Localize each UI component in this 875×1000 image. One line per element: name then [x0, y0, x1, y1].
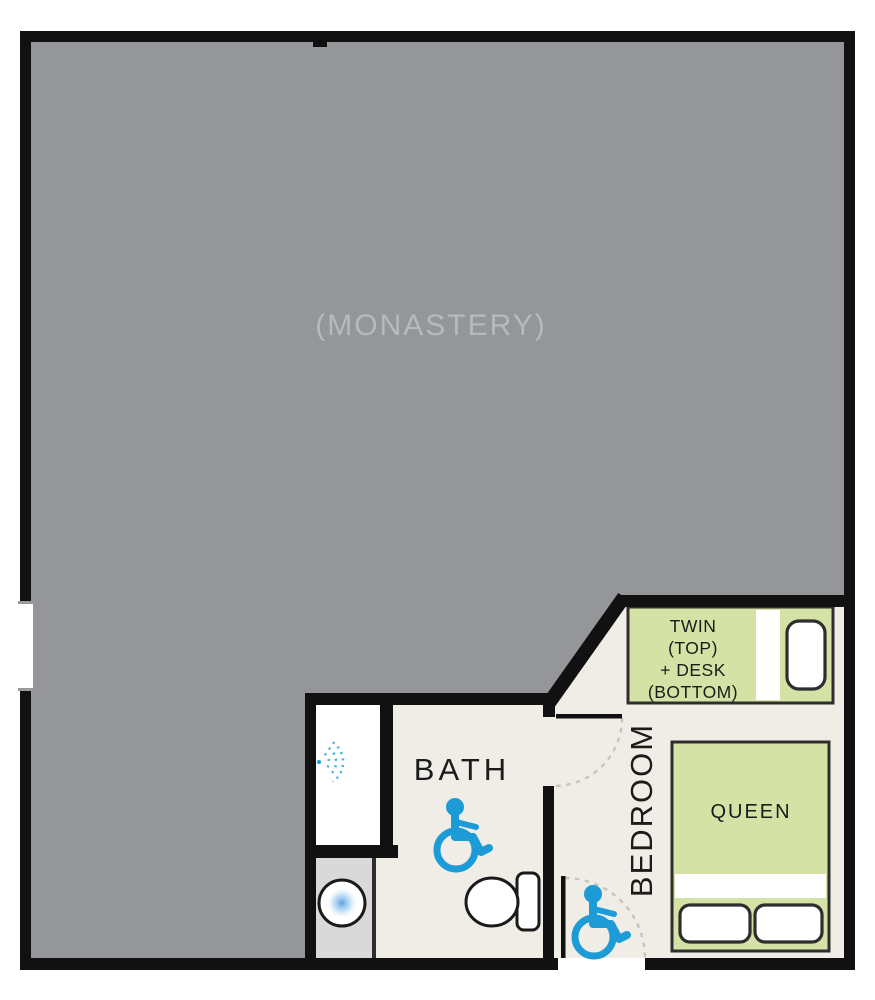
- twin-label-line4: (BOTTOM): [648, 682, 738, 702]
- toilet-tank: [517, 873, 539, 930]
- floor-plan-svg: (MONASTERY) BATH BEDROOM QUEEN TWIN (TOP…: [0, 0, 875, 1000]
- wall-bottom-left: [20, 958, 558, 970]
- wall-top-notch: [313, 42, 327, 47]
- bath-door-panel: [556, 714, 622, 719]
- wall-bottom-right: [645, 958, 855, 970]
- bath-label: BATH: [414, 752, 510, 787]
- entrance-door-panel: [561, 876, 566, 958]
- wall-shower-right: [380, 705, 393, 858]
- queen-sheet-fold: [675, 874, 826, 898]
- wall-shower-bottom: [305, 845, 398, 858]
- window-opening: [18, 604, 33, 688]
- twin-bed-headboard-gap: [756, 610, 780, 700]
- twin-label-line1: TWIN: [670, 616, 717, 636]
- monastery-label: (MONASTERY): [315, 309, 546, 342]
- wall-left: [20, 31, 31, 970]
- vanity-divider: [372, 858, 376, 958]
- shower-stall: [316, 705, 380, 845]
- wall-bedroom-top: [618, 595, 844, 607]
- queen-pillow-right: [755, 905, 822, 942]
- sink-water: [326, 887, 358, 919]
- wall-right: [844, 31, 855, 970]
- window-tick-bottom: [18, 688, 33, 691]
- queen-bed-group: [672, 742, 829, 951]
- floor-plan-page: (MONASTERY) BATH BEDROOM QUEEN TWIN (TOP…: [0, 0, 875, 1000]
- toilet-icon: [466, 873, 539, 930]
- window-tick-top: [18, 601, 33, 604]
- wall-top: [20, 31, 855, 42]
- sink-icon: [319, 880, 365, 926]
- twin-label-line3: + DESK: [660, 660, 726, 680]
- bedroom-label: BEDROOM: [624, 723, 659, 897]
- queen-pillow-left: [680, 905, 750, 942]
- twin-pillow: [787, 621, 825, 689]
- wall-bath-bedroom: [543, 786, 554, 958]
- toilet-bowl: [466, 878, 518, 926]
- wall-bath-left: [305, 693, 316, 958]
- twin-label-line2: (TOP): [668, 638, 718, 658]
- wall-bath-top: [305, 693, 555, 705]
- queen-bed-label: QUEEN: [710, 801, 791, 823]
- shower-head: [317, 760, 321, 764]
